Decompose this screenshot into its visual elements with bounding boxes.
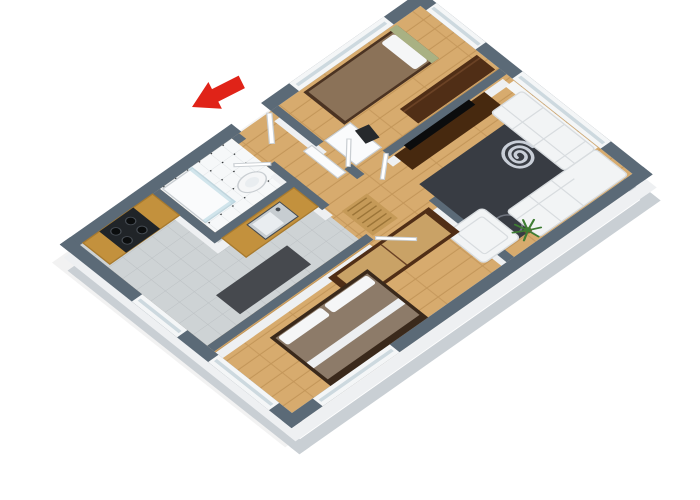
bedroom-bottom-door-leaf (376, 237, 417, 241)
bedroom-top-door-leaf (346, 139, 351, 167)
entrance-arrow-icon (192, 76, 245, 109)
building (43, 0, 673, 456)
floor-plan-scene (0, 0, 700, 500)
